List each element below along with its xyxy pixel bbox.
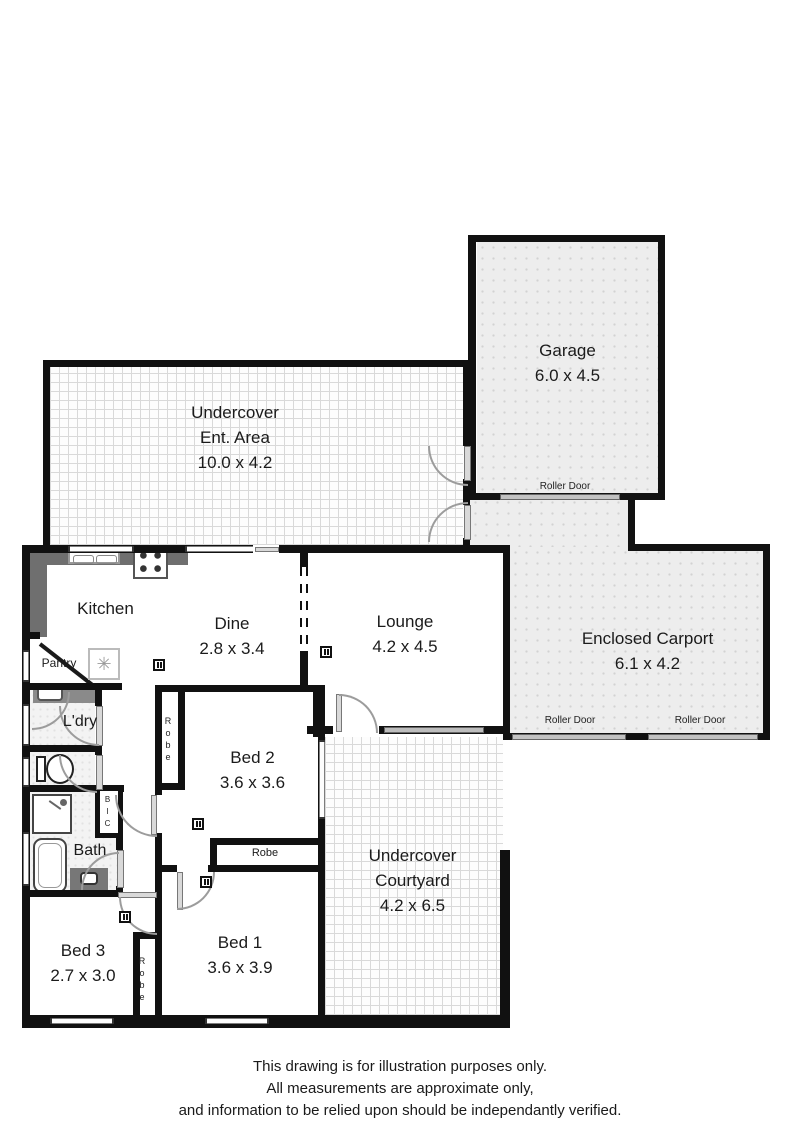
kitchen-label: Kitchen [48,596,163,621]
wall-bath-bottom [22,890,118,897]
wall-robe-box-top [210,838,325,845]
wall-dine-lounge-dashed [300,567,308,651]
bed3-window [50,1018,114,1024]
disclaimer-line1: This drawing is for illustration purpose… [0,1056,800,1078]
ent-line1: Undercover [50,400,420,425]
bed3-dims: 2.7 x 3.0 [28,963,138,988]
bed2-window [319,740,325,819]
kitchen-counter-left [30,565,47,637]
wall-garage-right [658,235,665,500]
bed2-dims: 3.6 x 3.6 [190,770,315,795]
kitchen-window [68,546,134,552]
carport-dims: 6.1 x 4.2 [540,651,755,676]
vent-icon-bed1 [200,876,212,888]
garage-label: Garage 6.0 x 4.5 [477,338,658,388]
bed2-label: Bed 2 3.6 x 3.6 [190,745,315,795]
wall-dine-lounge-top [300,553,308,567]
bath-label: Bath [55,841,125,861]
bed1-dims: 3.6 x 3.9 [175,955,305,980]
carport-roller-door-label-left: Roller Door [515,715,625,727]
wall-carport-right [763,544,770,740]
laundry-window [23,704,29,746]
vent-icon-bed3 [119,911,131,923]
disclaimer: This drawing is for illustration purpose… [0,1056,800,1122]
lounge-label: Lounge 4.2 x 4.5 [330,609,480,659]
carport-roller-door-bar-left [512,734,626,740]
garage-roller-door-label: Roller Door [505,481,625,493]
wall-wc-top [22,745,102,752]
wall-laundry-top [22,683,122,690]
wall-courtyard-right [500,850,510,1020]
courtyard-line1: Undercover [330,843,495,868]
floor-plan: ✳ [0,0,800,1131]
courtyard-label: Undercover Courtyard 4.2 x 6.5 [330,843,495,918]
disclaimer-line3: and information to be relied upon should… [0,1100,800,1122]
bed1-window [205,1018,269,1024]
robe-label-bed2: Robe [163,700,173,780]
bed1-name: Bed 1 [175,930,305,955]
wall-carport-step-v [628,497,635,551]
wc-window [23,757,29,787]
pantry-label: Pantry [28,656,90,670]
vent-icon-hall-bed2 [192,818,204,830]
bed1-label: Bed 1 3.6 x 3.9 [175,930,305,980]
garage-roller-door-bar [500,494,620,500]
bed3-label: Bed 3 2.7 x 3.0 [28,938,138,988]
wall-garage-top [468,235,665,242]
disclaimer-line2: All measurements are approximate only, [0,1078,800,1100]
courtyard-line2: Courtyard [330,868,495,893]
ent-line2: Ent. Area [50,425,420,450]
laundry-label: L'dry [40,712,120,732]
garage-name: Garage [477,338,658,363]
entry-door-leaf [255,547,279,552]
bic-label: BIC [103,793,112,833]
wall-carport-step-h [628,544,770,551]
carport-roller-door-bar-right [648,734,758,740]
garage-dims: 6.0 x 4.5 [477,363,658,388]
wall-lounge-right [503,553,510,737]
bath-window [23,832,29,886]
wall-robe2-bottom [155,783,185,790]
carport-label: Enclosed Carport 6.1 x 4.2 [540,626,755,676]
robe-label-bed3: Robe [137,946,147,1014]
wall-bed1-top-b [208,865,325,872]
carport-roller-door-label-right: Roller Door [645,715,755,727]
wall-ent-top [43,360,470,367]
wall-col-right-a [95,683,102,706]
wall-bed1-top-a [155,865,177,872]
ent-area-label: Undercover Ent. Area 10.0 x 4.2 [50,400,420,475]
lounge-name: Lounge [330,609,480,634]
shower [32,794,72,834]
ent-dims: 10.0 x 4.2 [50,450,420,475]
dine-name: Dine [163,611,301,636]
wc-door-leaf [96,755,103,790]
dine-window [185,546,255,552]
dine-dims: 2.8 x 3.4 [163,636,301,661]
dine-label: Dine 2.8 x 3.4 [163,611,301,661]
wall-bed2-spine-a [155,685,162,795]
toilet-cistern [36,756,46,782]
bed2-name: Bed 2 [190,745,315,770]
wall-bed1-right [318,865,325,1020]
robe-label-bed2-box: Robe [215,846,315,860]
shower-head-icon [60,799,67,806]
lounge-dims: 4.2 x 4.5 [330,634,480,659]
bed3-name: Bed 3 [28,938,138,963]
hot-water-icon: ✳ [90,654,118,675]
courtyard-dims: 4.2 x 6.5 [330,893,495,918]
wall-ent-left [43,360,50,545]
wall-pantry-stub [22,632,40,639]
carport-name: Enclosed Carport [540,626,755,651]
carport-floor-upper [470,497,628,547]
wall-robe2-right [178,685,185,790]
hot-water-unit: ✳ [88,648,120,680]
courtyard-sliding-door [384,727,484,733]
